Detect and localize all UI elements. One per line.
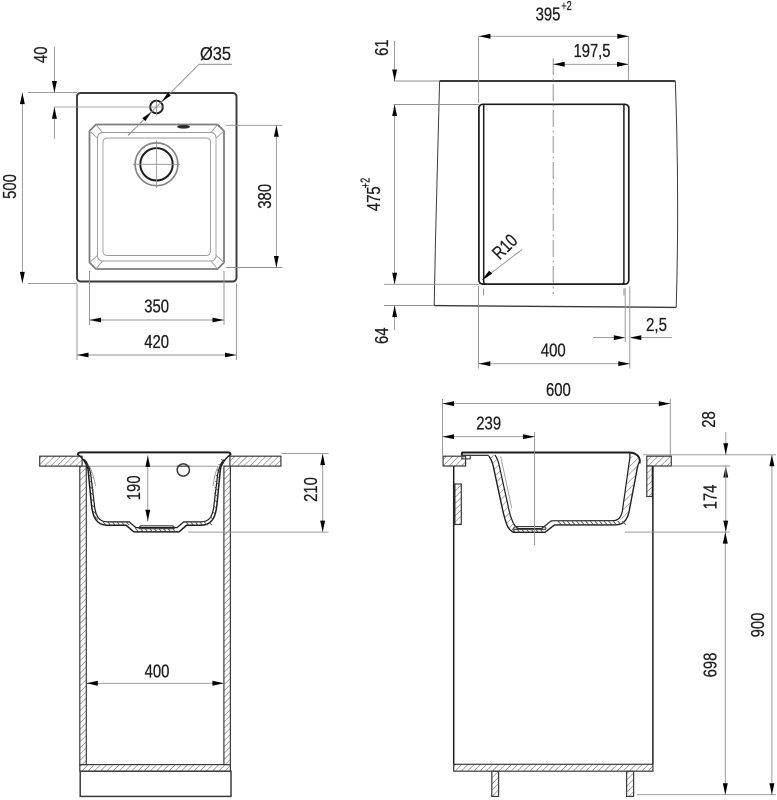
- svg-text:600: 600: [546, 379, 571, 400]
- svg-text:380: 380: [254, 184, 275, 209]
- svg-text:698: 698: [699, 653, 720, 678]
- svg-text:400: 400: [541, 340, 566, 361]
- svg-text:28: 28: [698, 411, 719, 428]
- svg-text:900: 900: [747, 613, 768, 638]
- svg-text:350: 350: [144, 296, 169, 317]
- svg-text:+2: +2: [358, 178, 373, 188]
- svg-text:400: 400: [145, 660, 170, 681]
- svg-text:+2: +2: [561, 0, 571, 13]
- svg-text:395: 395: [536, 3, 561, 24]
- svg-text:64: 64: [371, 328, 392, 345]
- svg-text:197,5: 197,5: [574, 40, 611, 61]
- svg-text:210: 210: [300, 477, 321, 502]
- svg-text:475: 475: [363, 186, 384, 211]
- svg-text:40: 40: [30, 46, 51, 63]
- svg-text:61: 61: [371, 39, 392, 56]
- svg-text:2,5: 2,5: [646, 314, 667, 335]
- svg-text:Ø35: Ø35: [200, 43, 231, 64]
- svg-text:500: 500: [0, 174, 20, 199]
- svg-text:190: 190: [123, 475, 144, 500]
- svg-text:420: 420: [144, 331, 169, 352]
- svg-text:239: 239: [476, 413, 501, 434]
- svg-text:174: 174: [700, 485, 721, 510]
